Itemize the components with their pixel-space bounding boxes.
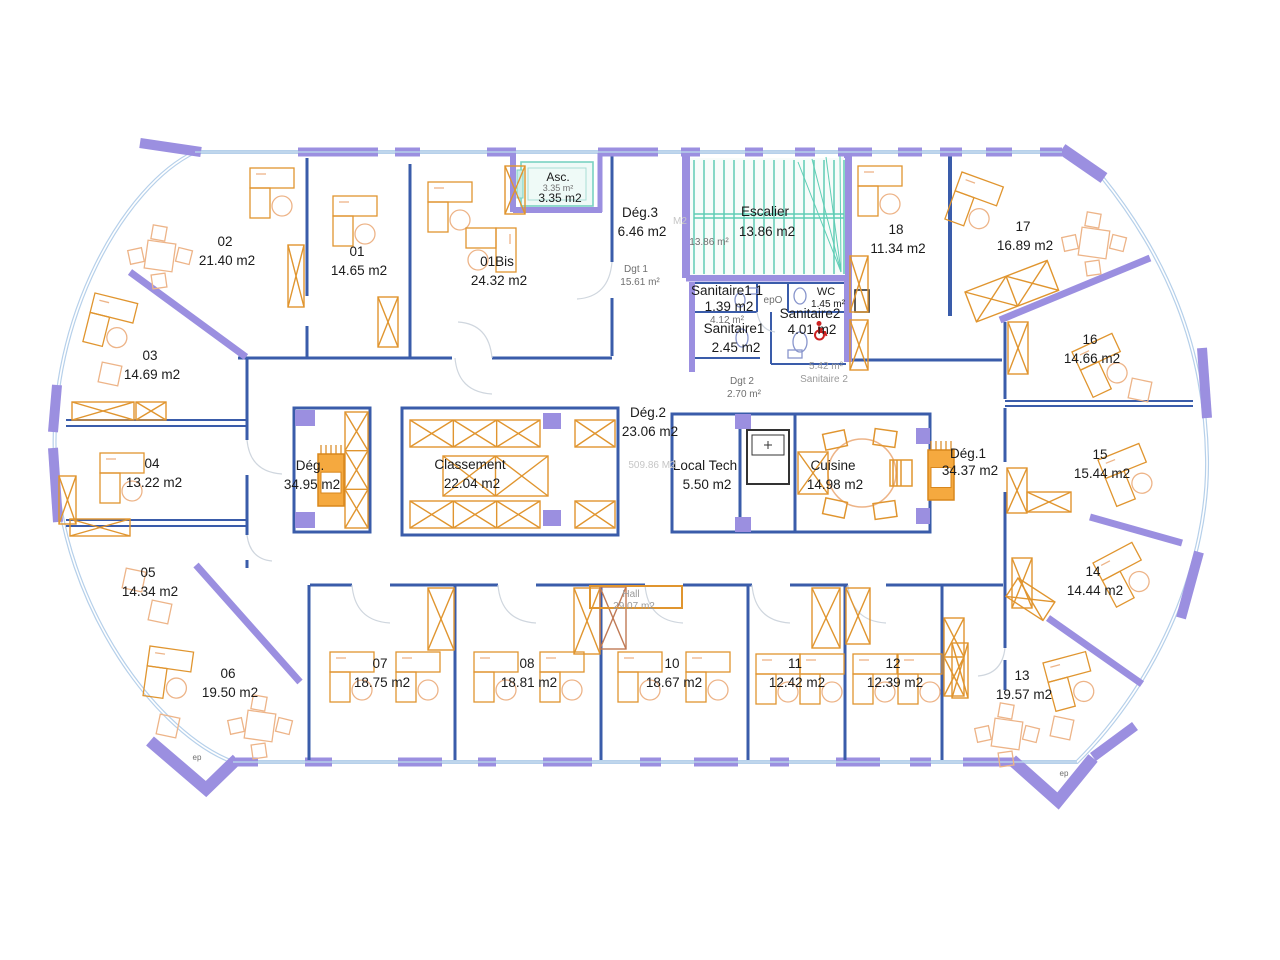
- annotation-10: 509.86 M2: [628, 460, 676, 471]
- room-label-03: 03: [142, 348, 157, 363]
- annotation-12: 29.07 m2: [613, 601, 655, 612]
- room-area-10: 18.67 m2: [646, 675, 702, 690]
- annotation-3: 15.61 m²: [620, 277, 660, 288]
- floor-plan-svg: 0221.40 m20114.65 m201Bis24.32 m20314.69…: [0, 0, 1280, 960]
- room-label-04: 04: [144, 456, 160, 471]
- room-area-16: 14.66 m2: [1064, 351, 1120, 366]
- annotation-11: Hall: [622, 589, 639, 600]
- room-label-Classement: Classement: [434, 457, 506, 472]
- annotation-9: epO: [764, 295, 783, 306]
- annotation-0: 3.35 m²: [543, 183, 574, 193]
- annotation-1: 13.86 m²: [689, 237, 729, 248]
- room-label-18: 18: [888, 222, 903, 237]
- room-area-Sanitaire1: 2.45 m2: [712, 340, 761, 355]
- room-label-01Bis: 01Bis: [480, 254, 514, 269]
- annotation-14: ep: [193, 753, 202, 762]
- room-area-18: 11.34 m2: [870, 241, 925, 256]
- room-area-14: 14.44 m2: [1067, 583, 1123, 598]
- room-area-02: 21.40 m2: [199, 253, 255, 268]
- room-label-10: 10: [664, 656, 679, 671]
- room-label-01: 01: [349, 244, 364, 259]
- room-label-08: 08: [519, 656, 534, 671]
- annotation-6: 2.70 m²: [727, 389, 762, 400]
- floor-plan-page: 0221.40 m20114.65 m201Bis24.32 m20314.69…: [0, 0, 1280, 960]
- room-area-Dég.3: 6.46 m2: [618, 224, 667, 239]
- room-label-Dég.2: Dég.2: [630, 405, 666, 420]
- room-label-17: 17: [1015, 219, 1030, 234]
- room-area-Sanitaire1 1: 1.39 m2: [705, 299, 754, 314]
- room-area-Local Tech: 5.50 m2: [683, 477, 732, 492]
- room-area-Escalier: 13.86 m2: [739, 224, 795, 239]
- room-label-Sanitaire2: Sanitaire2: [780, 306, 841, 321]
- room-area-05: 14.34 m2: [122, 584, 178, 599]
- room-area-Classement: 22.04 m2: [444, 476, 500, 491]
- room-label-05: 05: [140, 565, 155, 580]
- copier: [318, 445, 344, 506]
- annotation-8: Sanitaire 2: [800, 374, 848, 385]
- room-area-04: 13.22 m2: [126, 475, 182, 490]
- annotation-15: ep: [1060, 769, 1069, 778]
- room-area-03: 14.69 m2: [124, 367, 180, 382]
- room-label-WC: WC: [817, 286, 835, 298]
- room-area-Dég.: 34.95 m2: [284, 477, 340, 492]
- room-area-08: 18.81 m2: [501, 675, 557, 690]
- room-area-Asc.: 3.35 m2: [538, 191, 582, 205]
- room-area-06: 19.50 m2: [202, 685, 258, 700]
- room-label-13: 13: [1014, 668, 1029, 683]
- room-label-15: 15: [1092, 447, 1107, 462]
- room-area-Dég.1: 34.37 m2: [942, 463, 998, 478]
- room-label-Dég.1: Dég.1: [950, 446, 986, 461]
- room-label-16: 16: [1082, 332, 1097, 347]
- room-label-Cuisine: Cuisine: [810, 458, 855, 473]
- room-label-Asc.: Asc.: [546, 170, 569, 184]
- room-area-Sanitaire2: 4.01 m2: [788, 322, 837, 337]
- annotation-4: 4.12 m²: [710, 315, 745, 326]
- annotation-13: M2: [673, 216, 687, 227]
- room-label-14: 14: [1085, 564, 1101, 579]
- room-area-15: 15.44 m2: [1074, 466, 1130, 481]
- room-area-17: 16.89 m2: [997, 238, 1053, 253]
- room-area-11: 12.42 m2: [769, 675, 825, 690]
- room-area-Dég.2: 23.06 m2: [622, 424, 678, 439]
- room-area-01Bis: 24.32 m2: [471, 273, 527, 288]
- room-area-Cuisine: 14.98 m2: [807, 477, 863, 492]
- room-label-06: 06: [220, 666, 235, 681]
- room-area-07: 18.75 m2: [354, 675, 410, 690]
- room-area-12: 12.39 m2: [867, 675, 923, 690]
- annotation-7: 5.42 m²: [809, 361, 844, 372]
- room-label-07: 07: [372, 656, 387, 671]
- room-label-02: 02: [217, 234, 232, 249]
- room-label-Sanitaire1 1: Sanitaire1 1: [691, 283, 763, 298]
- annotation-5: Dgt 2: [730, 376, 754, 387]
- room-label-Dég.3: Dég.3: [622, 205, 658, 220]
- annotation-2: Dgt 1: [624, 264, 648, 275]
- sink-unit: [747, 430, 789, 484]
- room-label-11: 11: [788, 656, 802, 671]
- room-area-01: 14.65 m2: [331, 263, 387, 278]
- room-label-12: 12: [885, 656, 900, 671]
- room-label-Dég.: Dég.: [296, 458, 325, 473]
- room-area-13: 19.57 m2: [996, 687, 1052, 702]
- room-label-Escalier: Escalier: [741, 204, 790, 219]
- room-label-Local Tech: Local Tech: [673, 458, 737, 473]
